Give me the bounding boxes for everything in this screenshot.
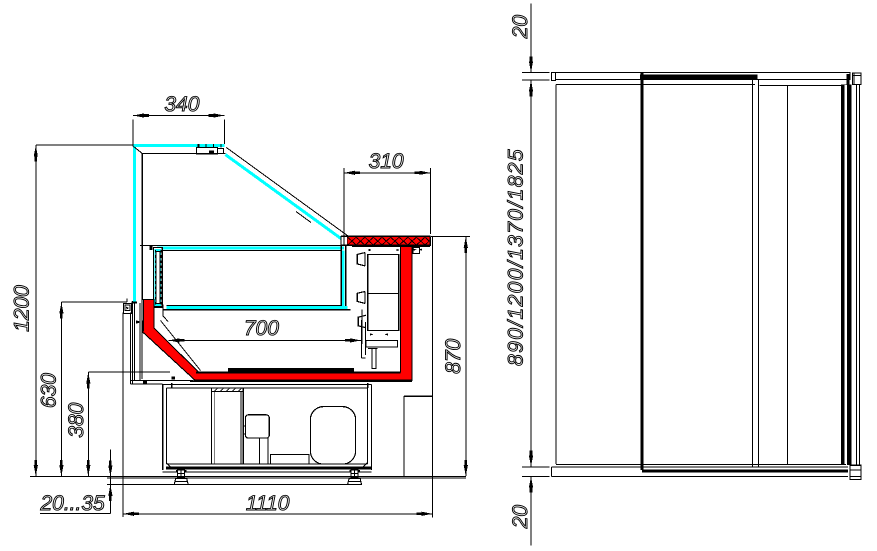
- svg-text:380: 380: [65, 402, 88, 437]
- svg-text:20: 20: [509, 15, 532, 40]
- svg-text:1200: 1200: [11, 285, 34, 332]
- svg-text:340: 340: [164, 93, 199, 116]
- svg-text:310: 310: [369, 150, 404, 173]
- svg-text:700: 700: [244, 317, 279, 340]
- svg-text:890/1200/1370/1825: 890/1200/1370/1825: [505, 148, 528, 366]
- svg-text:20...35: 20...35: [39, 492, 105, 515]
- svg-text:20: 20: [509, 505, 532, 530]
- svg-text:1110: 1110: [246, 492, 290, 515]
- svg-text:630: 630: [38, 373, 61, 408]
- svg-text:870: 870: [442, 338, 465, 373]
